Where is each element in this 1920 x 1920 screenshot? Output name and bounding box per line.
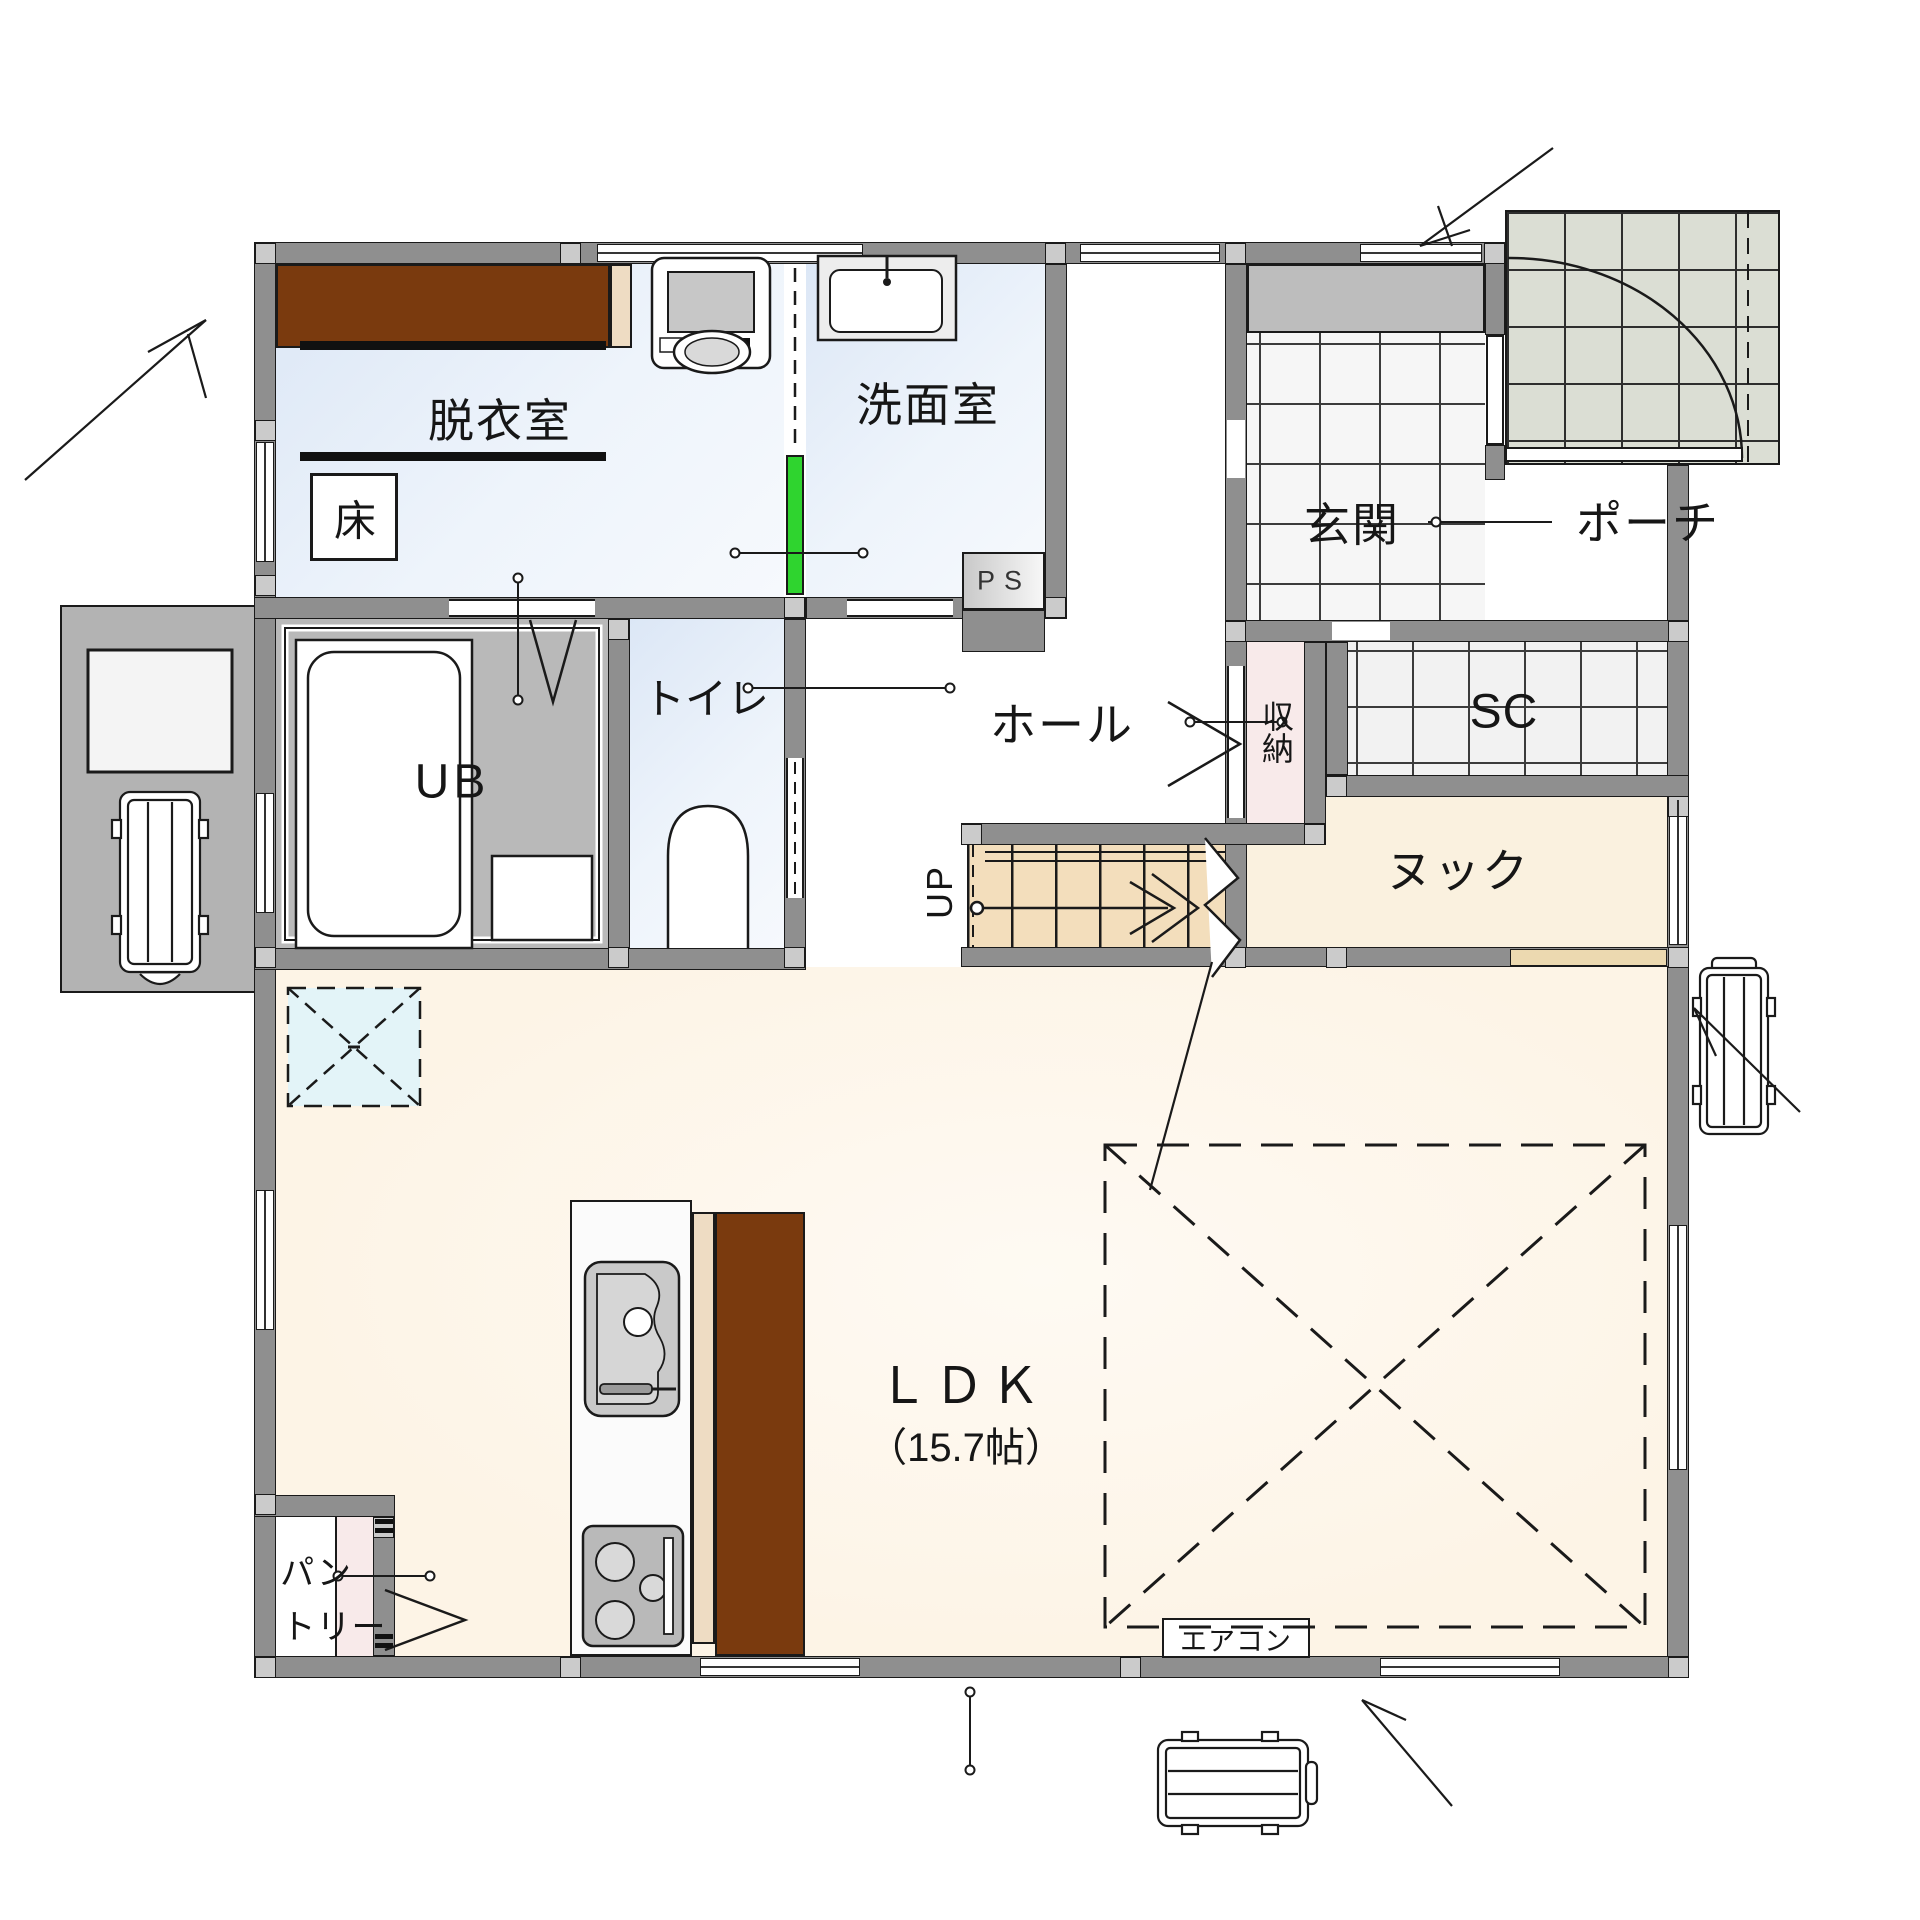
washing-machine-icon xyxy=(652,258,770,373)
label-ps: PS xyxy=(977,566,1031,597)
swing-pantry-door xyxy=(385,1590,465,1650)
label-toilet: トイレ xyxy=(643,666,769,727)
label-pantry-line2: トリー xyxy=(282,1600,387,1649)
door-swing-marks xyxy=(385,620,1240,1650)
label-porch: ポーチ xyxy=(1576,487,1720,553)
water-heater-icon xyxy=(88,650,232,772)
label-ub: UB xyxy=(415,755,490,810)
stairs-detail xyxy=(971,838,1240,1190)
label-genkan: 玄関 xyxy=(1304,489,1400,555)
floor-plan: 脱衣室 床 洗面室 PS 玄関 ポーチ ホール 収納 SC UB トイレ UP … xyxy=(0,0,1920,1920)
dashed-dining-area xyxy=(1105,1145,1645,1627)
swing-ub-door xyxy=(530,620,576,702)
porch-door-swing xyxy=(1506,212,1748,463)
bathroom-sink-icon xyxy=(818,256,956,340)
label-senmenshitsu: 洗面室 xyxy=(856,369,1000,435)
kitchen-sink-icon xyxy=(585,1262,679,1416)
label-hall: ホール xyxy=(990,689,1134,755)
label-nook: ヌック xyxy=(1386,835,1530,901)
label-aircon: エアコン xyxy=(1180,1620,1292,1659)
ac-unit-left-icon xyxy=(112,792,208,984)
label-floor-box: 床 xyxy=(334,488,376,549)
label-ldk: ＬＤＫ xyxy=(878,1346,1046,1418)
label-pantry-line1: パン xyxy=(280,1546,352,1595)
label-up: UP xyxy=(919,865,961,919)
label-storage: 収納 xyxy=(1253,700,1299,764)
dashed-square xyxy=(288,988,420,1106)
swing-storage-door xyxy=(1168,702,1240,786)
ac-unit-bottom-icon xyxy=(1158,1732,1317,1834)
stove-icon xyxy=(583,1526,683,1646)
toilet-icon xyxy=(668,806,748,948)
label-sc: SC xyxy=(1470,685,1539,740)
label-ldk-area: （15.7帖） xyxy=(867,1415,1065,1473)
label-datsuishitsu: 脱衣室 xyxy=(428,385,572,451)
